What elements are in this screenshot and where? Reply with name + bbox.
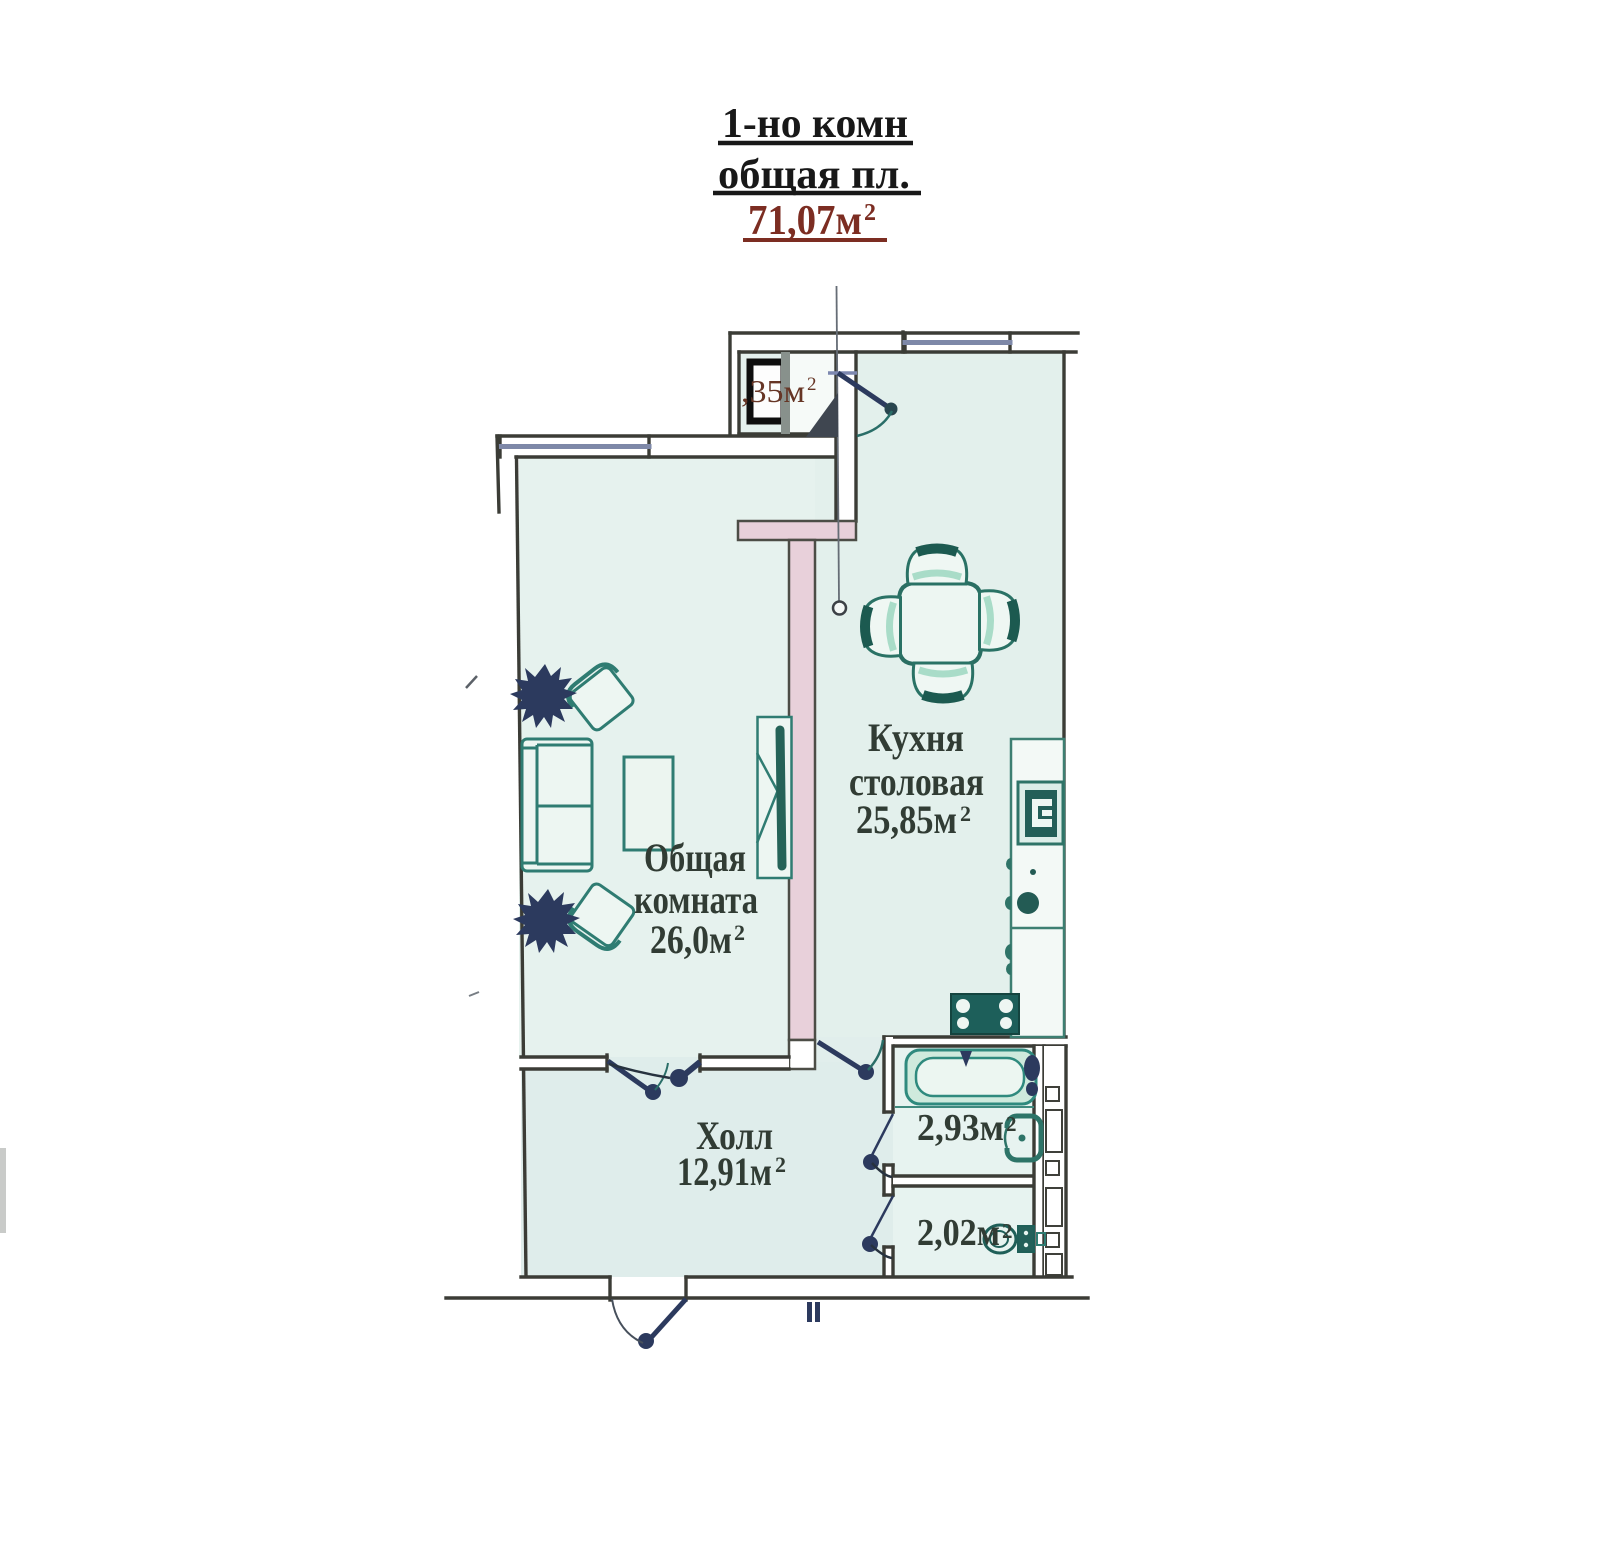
svg-text:26,0м: 26,0м	[650, 917, 732, 962]
svg-text:12,91м: 12,91м	[677, 1149, 772, 1194]
svg-text:2,93м: 2,93м	[917, 1107, 1004, 1149]
svg-text:2: 2	[734, 920, 745, 945]
svg-text:2: 2	[960, 801, 971, 826]
svg-text:комната: комната	[634, 877, 758, 922]
svg-text:2,02м: 2,02м	[917, 1212, 1000, 1254]
svg-text:1-но комн: 1-но комн	[722, 101, 908, 147]
svg-text:Кухня: Кухня	[868, 715, 964, 760]
svg-text:2: 2	[775, 1152, 786, 1177]
svg-text:2: 2	[864, 200, 876, 226]
svg-text:25,85м: 25,85м	[856, 797, 957, 842]
svg-text:2: 2	[1002, 1219, 1013, 1243]
svg-text:2: 2	[807, 374, 817, 395]
svg-text:,35м: ,35м	[741, 373, 805, 409]
svg-text:Общая: Общая	[644, 835, 746, 880]
svg-text:71,07м: 71,07м	[748, 198, 862, 244]
svg-text:2: 2	[1006, 1112, 1017, 1136]
